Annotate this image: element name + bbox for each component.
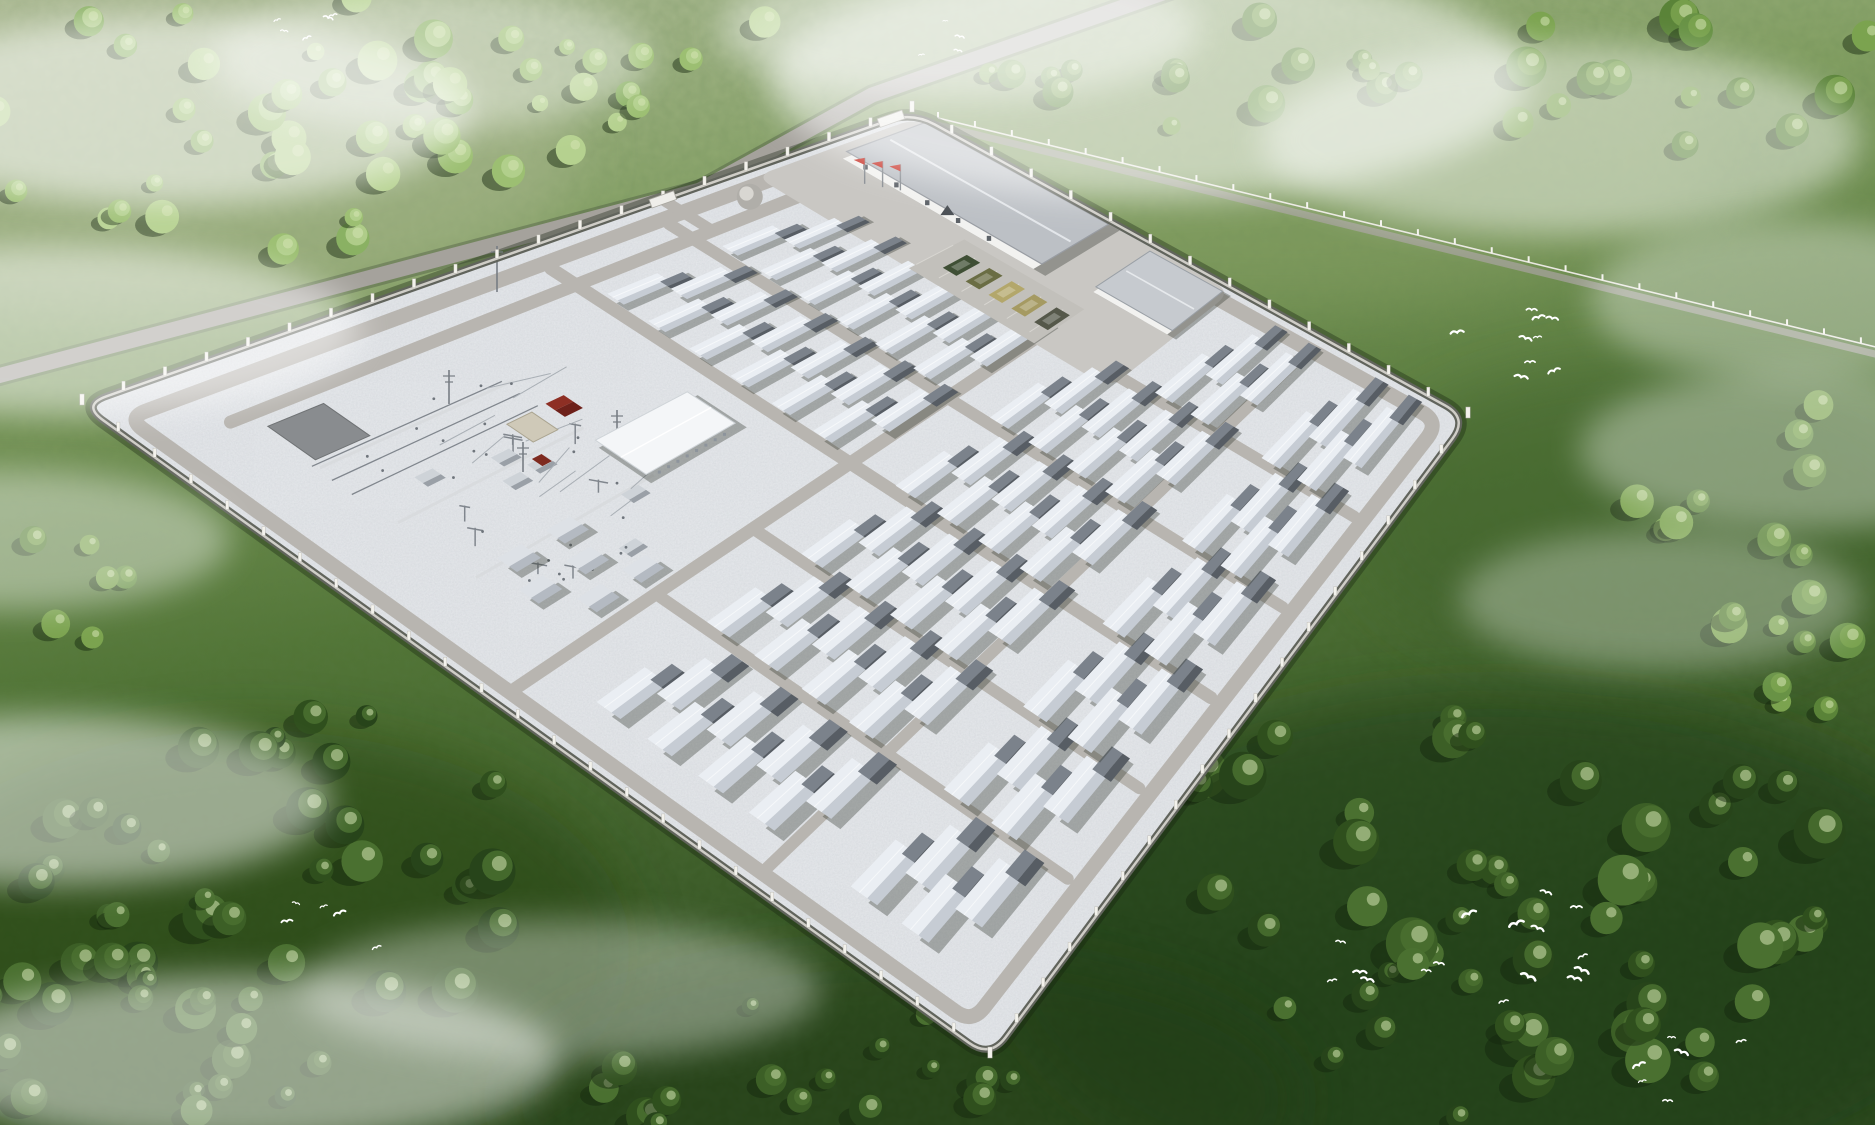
tree-highlight	[1554, 1043, 1566, 1055]
wall-post	[620, 206, 623, 215]
wall-post	[1149, 234, 1152, 243]
wall-post	[1387, 516, 1390, 525]
wall-post	[1413, 480, 1416, 489]
tree-highlight	[1783, 775, 1793, 785]
tree-highlight	[229, 907, 240, 918]
tree-highlight	[799, 1092, 807, 1100]
fence-post	[1417, 229, 1419, 235]
tree-highlight	[1366, 986, 1375, 995]
tree-highlight	[1643, 1013, 1654, 1024]
tree-highlight	[1704, 1066, 1713, 1075]
insulator	[381, 469, 384, 472]
wall-post	[589, 762, 592, 771]
window	[676, 460, 679, 463]
tree-highlight	[1760, 930, 1775, 945]
tree-highlight	[331, 749, 343, 761]
window	[667, 465, 670, 468]
wall-post	[444, 657, 447, 666]
wall-post	[1227, 729, 1230, 738]
tree-highlight	[366, 709, 373, 716]
wall-post	[698, 840, 701, 849]
fog-patch	[300, 920, 820, 1060]
tree-highlight	[1215, 880, 1227, 892]
wall-post	[1254, 693, 1257, 702]
tree-highlight	[1752, 990, 1763, 1001]
insulator	[510, 382, 513, 385]
tree-highlight	[362, 847, 375, 860]
tree-highlight	[493, 775, 502, 784]
tree-highlight	[866, 1099, 877, 1110]
insulator	[622, 516, 625, 519]
tree-highlight	[1367, 893, 1380, 906]
corner-post	[988, 1047, 992, 1058]
window	[704, 444, 707, 447]
wall-post	[335, 579, 338, 588]
wall-post	[786, 147, 789, 156]
door	[987, 236, 991, 241]
insulator	[485, 453, 488, 456]
tree-highlight	[656, 1116, 664, 1124]
wall-post	[807, 918, 810, 927]
insulator	[620, 552, 623, 555]
wall-post	[371, 293, 374, 302]
tree-highlight	[1275, 726, 1286, 737]
tree-highlight	[1359, 803, 1368, 812]
wall-post	[703, 176, 706, 185]
tree-highlight	[1381, 1021, 1391, 1031]
insulator	[577, 436, 580, 439]
tree-highlight	[1242, 760, 1257, 775]
wall-post	[1307, 622, 1310, 631]
tree-highlight	[1826, 700, 1834, 708]
tree-highlight	[119, 203, 127, 211]
wall-post	[1334, 587, 1337, 596]
insulator	[625, 546, 628, 549]
wall-post	[1440, 445, 1443, 454]
wall-post	[1308, 322, 1311, 331]
window	[714, 438, 717, 441]
wall-post	[1228, 278, 1231, 287]
wall-post	[879, 971, 882, 980]
tree-highlight	[283, 238, 293, 248]
fence-post	[1454, 238, 1456, 244]
wall-post	[537, 235, 540, 244]
tree-highlight	[137, 948, 150, 961]
tree-highlight	[826, 1072, 833, 1079]
wall-post	[1387, 365, 1390, 374]
insulator	[415, 427, 418, 430]
tree-highlight	[638, 98, 646, 106]
tree-highlight	[1413, 953, 1423, 963]
tree-highlight	[1265, 918, 1276, 929]
wall-post	[1174, 800, 1177, 809]
tree-highlight	[1647, 989, 1661, 1003]
tree-highlight	[1580, 767, 1593, 780]
fence-post	[1306, 202, 1308, 208]
tree-highlight	[1472, 725, 1481, 734]
wall-post	[1042, 978, 1045, 987]
tree-highlight	[931, 1062, 937, 1068]
wall-post	[916, 997, 919, 1006]
wall-post	[117, 422, 120, 431]
tree-highlight	[666, 1091, 675, 1100]
wall-post	[952, 1023, 955, 1032]
bird	[1571, 906, 1582, 907]
tree-highlight	[1743, 852, 1753, 862]
door	[925, 200, 929, 205]
wall-post	[1201, 765, 1204, 774]
tree-highlight	[1646, 811, 1662, 827]
window	[686, 454, 689, 457]
tree-highlight	[1011, 1073, 1018, 1080]
tree-highlight	[1333, 1050, 1341, 1058]
wall-post	[1427, 387, 1430, 396]
insulator	[452, 476, 455, 479]
window	[658, 471, 661, 474]
window	[695, 449, 698, 452]
tree-highlight	[112, 949, 124, 961]
tree-highlight	[880, 1041, 887, 1048]
wall-post	[770, 892, 773, 901]
insulator	[562, 578, 565, 581]
wall-post	[371, 605, 374, 614]
fence-post	[1528, 256, 1530, 262]
wall-post	[412, 279, 415, 288]
tree-highlight	[1472, 854, 1482, 864]
fog-patch	[1260, 45, 1860, 235]
tree-highlight	[22, 969, 34, 981]
fog-patch	[1460, 530, 1860, 670]
insulator	[442, 439, 445, 442]
tree-highlight	[310, 705, 321, 716]
tree-highlight	[162, 205, 173, 216]
wall-post	[516, 709, 519, 718]
wall-post	[495, 250, 498, 259]
tree-highlight	[1847, 629, 1858, 640]
wall-post	[262, 527, 265, 536]
tree-highlight	[117, 906, 125, 914]
insulator	[481, 530, 484, 533]
wall-post	[153, 448, 156, 457]
insulator	[483, 423, 486, 426]
wall-post	[1268, 300, 1271, 309]
wall-post	[1068, 942, 1071, 951]
window	[723, 433, 726, 436]
wall-post	[1015, 1013, 1018, 1022]
insulator	[432, 397, 435, 400]
tree-highlight	[345, 812, 357, 824]
tree-highlight	[570, 140, 580, 150]
tree-highlight	[1777, 677, 1786, 686]
tree-highlight	[79, 949, 91, 961]
wall-post	[578, 220, 581, 229]
tree-highlight	[979, 1087, 990, 1098]
tree-highlight	[354, 211, 360, 217]
tree-highlight	[1411, 926, 1428, 943]
tree-highlight	[1470, 973, 1478, 981]
wall-post	[1148, 836, 1151, 845]
wall-post	[1121, 871, 1124, 880]
wall-post	[189, 474, 192, 483]
tree-highlight	[508, 160, 519, 171]
fence-post	[1565, 265, 1567, 271]
insulator	[472, 450, 475, 453]
tree-highlight	[1700, 1033, 1709, 1042]
fence-post	[1380, 220, 1382, 226]
tree-highlight	[1819, 815, 1836, 832]
wall-post	[744, 162, 747, 171]
tree-highlight	[205, 891, 212, 898]
fence-post	[1269, 193, 1271, 199]
insulator	[480, 384, 483, 387]
tree-highlight	[92, 630, 99, 637]
tree-highlight	[1641, 955, 1650, 964]
tree-highlight	[1533, 946, 1546, 959]
insulator	[616, 482, 619, 485]
tree-highlight	[1533, 903, 1543, 913]
tree-highlight	[1540, 16, 1549, 25]
wall-post	[1109, 212, 1112, 221]
wall-post	[662, 814, 665, 823]
wall-post	[1360, 551, 1363, 560]
insulator	[558, 573, 561, 576]
tree-highlight	[1356, 826, 1371, 841]
tree-highlight	[274, 731, 281, 738]
tree-highlight	[1814, 910, 1822, 918]
tree-highlight	[1494, 860, 1504, 870]
tree-highlight	[691, 51, 698, 58]
corner-post	[1466, 407, 1470, 418]
tree-highlight	[771, 1069, 781, 1079]
wall-post	[407, 631, 410, 640]
tree-highlight	[1647, 1045, 1662, 1060]
wall-post	[553, 736, 556, 745]
door	[956, 218, 960, 223]
fence-post	[1343, 211, 1345, 217]
tree-highlight	[353, 227, 364, 238]
tree-highlight	[1285, 1000, 1292, 1007]
door	[894, 182, 898, 187]
tree-highlight	[1834, 81, 1847, 94]
tree-highlight	[1740, 770, 1751, 781]
gravel-mound	[737, 184, 763, 210]
wall-post	[734, 866, 737, 875]
tree-highlight	[427, 848, 437, 858]
fence-post	[1491, 247, 1493, 253]
tree-highlight	[183, 7, 190, 14]
tree-highlight	[983, 1070, 994, 1081]
wall-post	[226, 500, 229, 509]
tree-highlight	[1525, 1019, 1541, 1035]
tree-highlight	[1453, 709, 1461, 717]
wall-post	[843, 945, 846, 954]
insulator	[572, 450, 575, 453]
tree-highlight	[1695, 19, 1706, 30]
wall-post	[1281, 658, 1284, 667]
wall-post	[1347, 343, 1350, 352]
wall-post	[1188, 256, 1191, 265]
tree-highlight	[1606, 907, 1616, 917]
tree-highlight	[1510, 1015, 1520, 1025]
wall-post	[454, 264, 457, 273]
tree-highlight	[1623, 863, 1639, 879]
wall-post	[298, 553, 301, 562]
insulator	[366, 455, 369, 458]
tree-highlight	[55, 614, 64, 623]
mound-top	[739, 186, 753, 200]
wall-post	[625, 788, 628, 797]
energy-storage-plant-scene	[0, 0, 1875, 1125]
wall-post	[1095, 907, 1098, 916]
wall-post	[480, 683, 483, 692]
tree-highlight	[1506, 876, 1514, 884]
aerial-site-rendering	[0, 0, 1875, 1125]
tree-highlight	[1458, 1109, 1466, 1117]
tree-highlight	[286, 950, 298, 962]
insulator	[528, 579, 531, 582]
tree-highlight	[321, 862, 329, 870]
tree-highlight	[492, 856, 507, 871]
